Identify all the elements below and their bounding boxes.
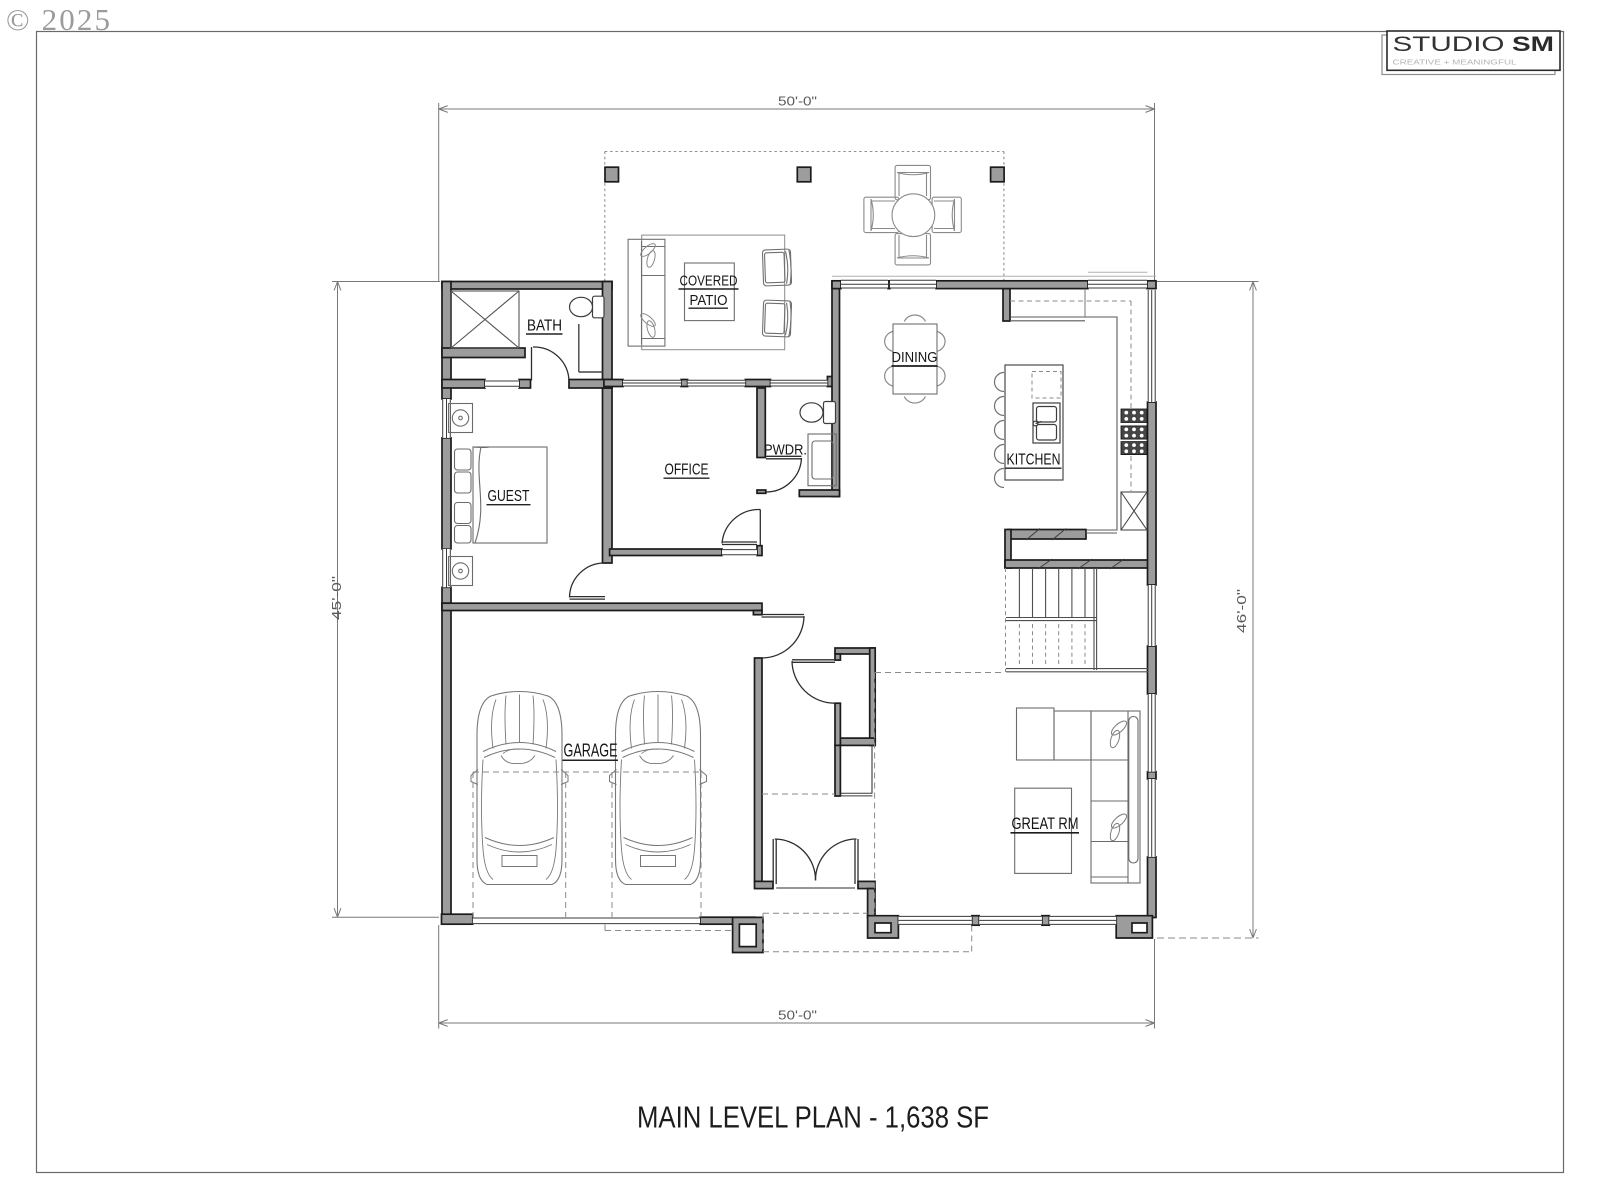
svg-text:GUEST: GUEST bbox=[488, 488, 530, 505]
svg-text:STUDIO: STUDIO bbox=[1393, 33, 1505, 56]
svg-text:KITCHEN: KITCHEN bbox=[1007, 452, 1061, 469]
svg-text:MAIN LEVEL PLAN - 1,638 SF: MAIN LEVEL PLAN - 1,638 SF bbox=[637, 1100, 989, 1135]
svg-text:GREAT RM: GREAT RM bbox=[1012, 814, 1079, 833]
svg-text:GARAGE: GARAGE bbox=[564, 741, 618, 761]
svg-text:PATIO: PATIO bbox=[690, 292, 728, 309]
svg-text:DINING: DINING bbox=[892, 349, 938, 366]
svg-text:45'-0": 45'-0" bbox=[329, 576, 344, 620]
svg-text:50'-0": 50'-0" bbox=[778, 94, 817, 109]
svg-text:BATH: BATH bbox=[527, 318, 562, 335]
svg-text:46'-0": 46'-0" bbox=[1234, 589, 1249, 633]
svg-text:CREATIVE + MEANINGFUL: CREATIVE + MEANINGFUL bbox=[1393, 58, 1517, 67]
svg-text:OFFICE: OFFICE bbox=[665, 462, 709, 479]
svg-text:SM: SM bbox=[1512, 33, 1554, 56]
svg-text:PWDR.: PWDR. bbox=[764, 442, 807, 459]
svg-text:50'-0": 50'-0" bbox=[778, 1008, 817, 1023]
svg-text:COVERED: COVERED bbox=[680, 273, 738, 290]
